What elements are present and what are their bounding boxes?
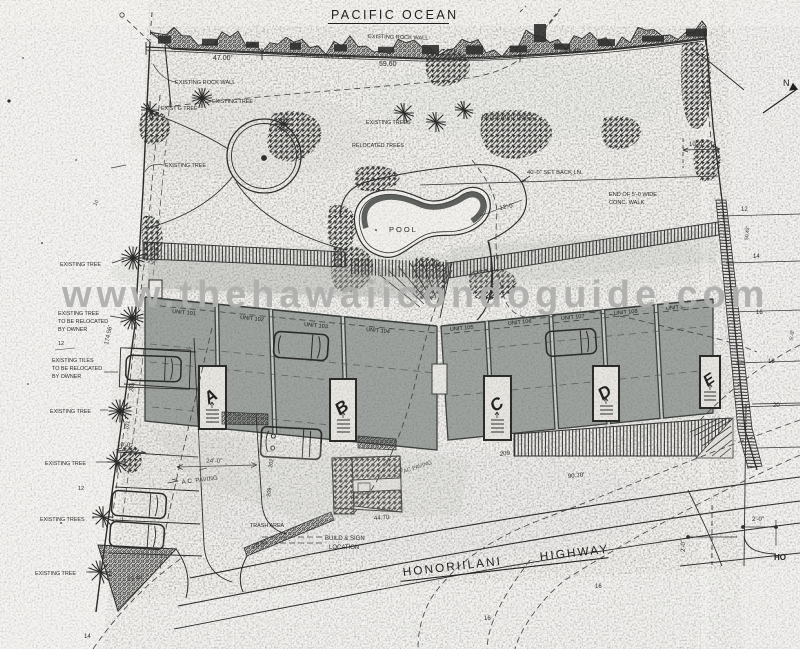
svg-text:www.thehawaiicondoguide.com: www.thehawaiicondoguide.com xyxy=(61,274,769,316)
